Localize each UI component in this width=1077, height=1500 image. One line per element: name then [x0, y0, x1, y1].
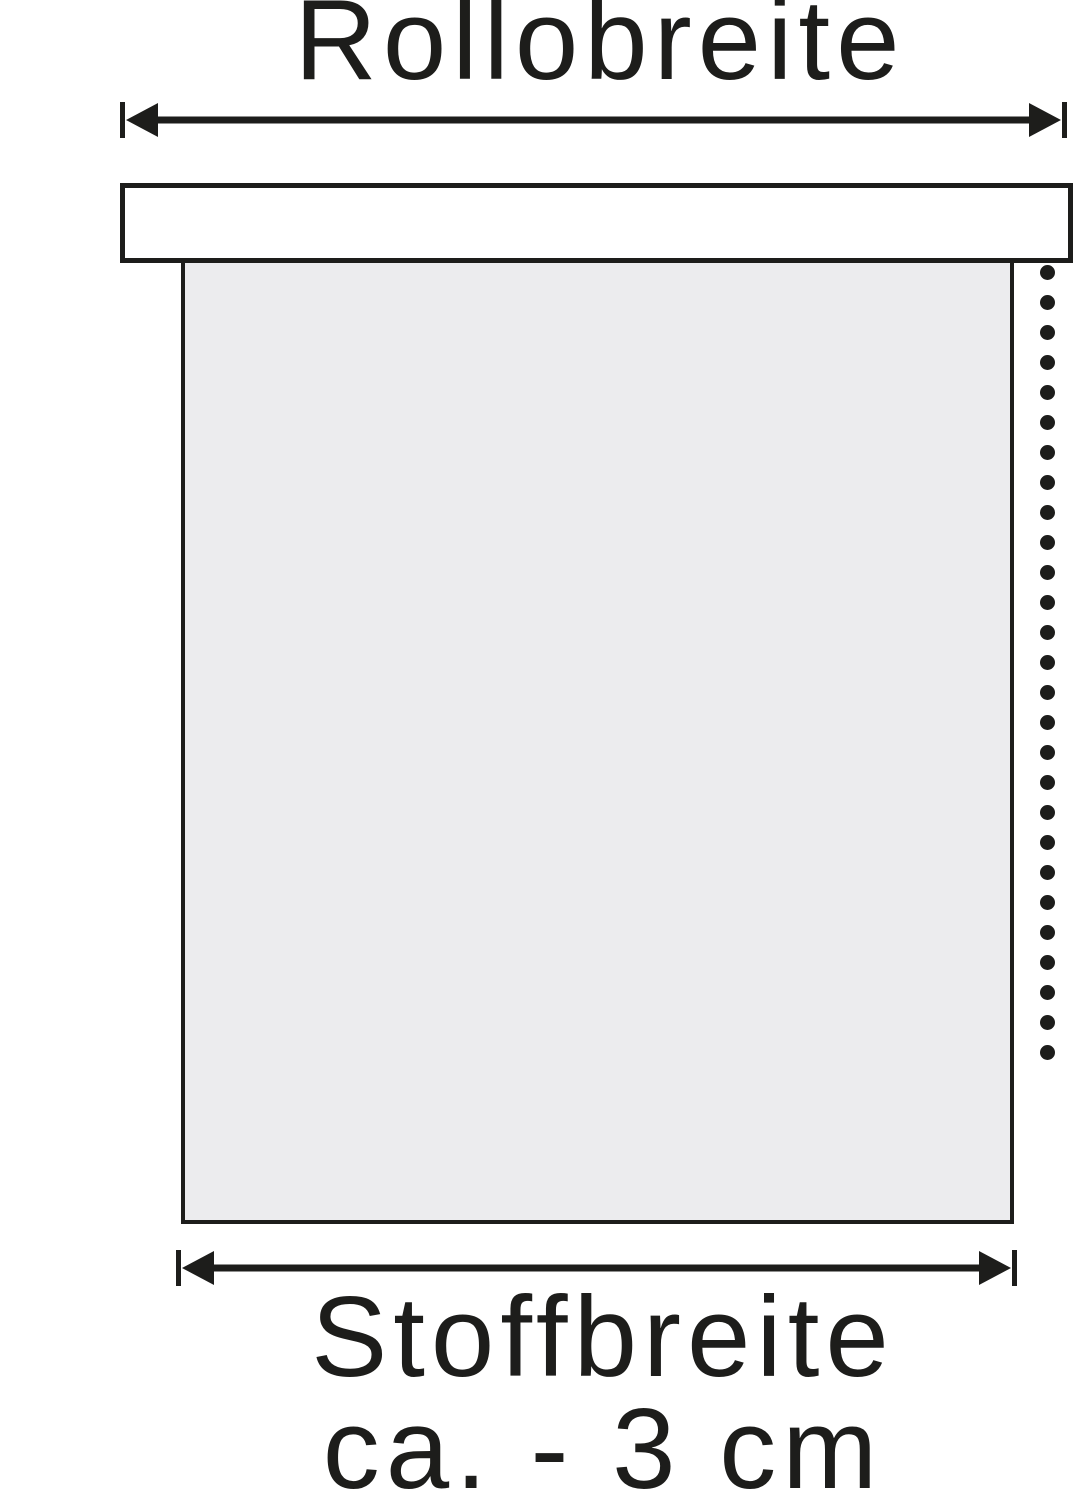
bead-dot — [1040, 445, 1055, 460]
cassette-rail — [120, 183, 1073, 263]
fabric-width-label-line2: ca. - 3 cm — [311, 1394, 895, 1500]
bead-dot — [1040, 535, 1055, 550]
bead-dot — [1040, 265, 1055, 280]
roller-blind-dimension-diagram: Rollobreite Stoffbreite ca. - 3 cm — [0, 0, 1077, 1500]
bead-dot — [1040, 895, 1055, 910]
bead-dot — [1040, 355, 1055, 370]
fabric-arrow-head-left — [182, 1251, 214, 1285]
bead-dot — [1040, 385, 1055, 400]
bead-dot — [1040, 745, 1055, 760]
bead-dot — [1040, 775, 1055, 790]
bead-dot — [1040, 565, 1055, 580]
bead-dot — [1040, 475, 1055, 490]
bead-dot — [1040, 985, 1055, 1000]
bead-dot — [1040, 865, 1055, 880]
bead-dot — [1040, 685, 1055, 700]
fabric-panel — [181, 263, 1014, 1224]
bead-dot — [1040, 655, 1055, 670]
bead-dot — [1040, 325, 1055, 340]
bead-dot — [1040, 595, 1055, 610]
bead-dot — [1040, 625, 1055, 640]
bead-dot — [1040, 955, 1055, 970]
bead-dot — [1040, 925, 1055, 940]
roller-arrow-head-left — [126, 103, 158, 137]
bead-dot — [1040, 835, 1055, 850]
fabric-arrow-head-right — [979, 1251, 1011, 1285]
bead-dot — [1040, 1045, 1055, 1060]
bead-dot — [1040, 295, 1055, 310]
bead-dot — [1040, 805, 1055, 820]
roller-width-arrow-icon — [119, 101, 1068, 139]
bead-dot — [1040, 715, 1055, 730]
roller-arrow-head-right — [1029, 103, 1061, 137]
bead-dot — [1040, 415, 1055, 430]
bead-dot — [1040, 505, 1055, 520]
bead-chain — [1040, 265, 1055, 1060]
fabric-width-label-line1: Stoffbreite — [311, 1282, 895, 1394]
fabric-width-label: Stoffbreite ca. - 3 cm — [311, 1282, 895, 1500]
roller-width-label: Rollobreite — [295, 0, 906, 98]
bead-dot — [1040, 1015, 1055, 1030]
